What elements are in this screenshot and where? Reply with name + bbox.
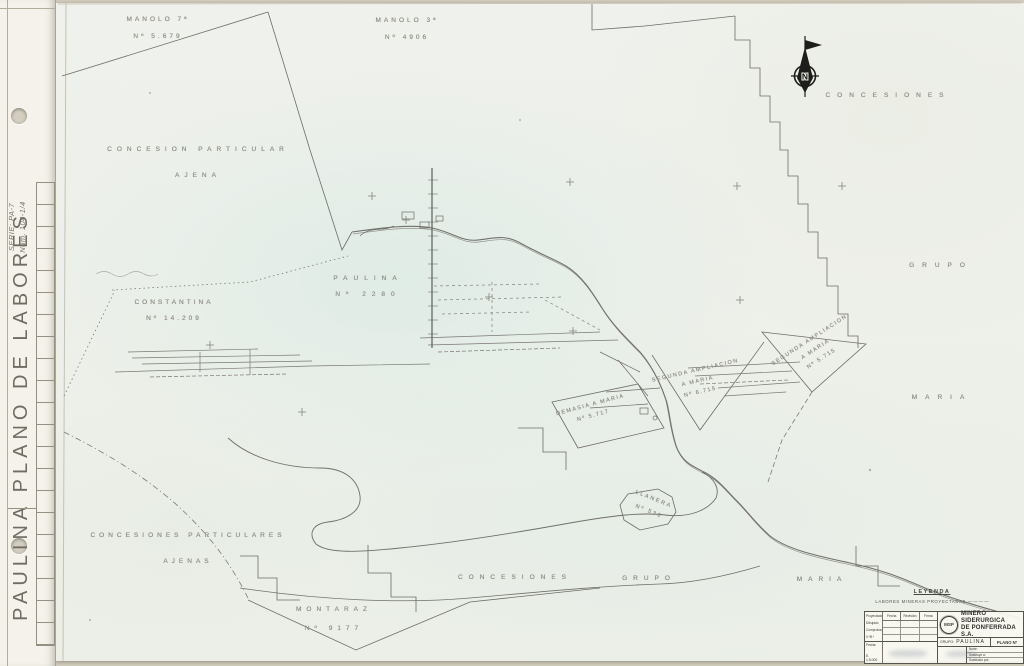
company-name-line2: DE PONFERRADA S.A. xyxy=(961,625,1021,639)
legend-title: LEYENDA xyxy=(852,589,1012,595)
grupo-label: GRUPO: xyxy=(940,640,954,644)
scanned-mining-plan: { "binder": { "vertical_title": "PAULINA… xyxy=(0,0,1024,666)
company-name-line1: MINERO SIDERURGICA xyxy=(961,611,1021,625)
incline-line xyxy=(428,168,438,348)
legend-item: LABORES MINERAS PROYECTADAS — — — — xyxy=(852,599,1012,604)
label-manolo-3: MANOLO 3ªNº 4906 xyxy=(376,12,439,46)
label-concesion-particular-ajena: CONCESION PARTICULARAJENA xyxy=(107,137,289,189)
title-block-revision-table: Proyectado Dibujado Comprobado V.ºB.º Fe… xyxy=(865,612,938,663)
handwritten-serie: SERIE: PA-7 xyxy=(6,171,17,283)
grupo-value: PAULINA xyxy=(956,639,985,645)
escala-value: E. 1:5.000 xyxy=(866,654,881,662)
fecha-label: Fecha: xyxy=(866,643,881,647)
revision-header-firma: Firma xyxy=(920,612,937,620)
binder-index-table xyxy=(36,182,55,646)
binder-strip: PAULINA PLANO DE LABORES SERIE: PA-7 Núm… xyxy=(0,0,56,666)
title-block-main: MSP MINERO SIDERURGICA DE PONFERRADA S.A… xyxy=(938,612,1023,663)
projected-works-lines xyxy=(434,282,600,332)
title-block: Proyectado Dibujado Comprobado V.ºB.º Fe… xyxy=(864,611,1024,664)
msp-logo-icon: MSP xyxy=(940,616,958,634)
plano-number-label: PLANO Nº xyxy=(991,638,1023,646)
binder-handwritten-note: SERIE: PA-7 Núm. 104-1/4 xyxy=(6,171,32,283)
handwritten-note-area xyxy=(883,642,937,663)
meta-row-sustituido: Sustituido por: xyxy=(967,658,1023,663)
label-maria-bottom: MARIA xyxy=(797,575,848,585)
label-maria-right: MARIA xyxy=(912,393,973,403)
legend: LEYENDA LABORES MINERAS PROYECTADAS — — … xyxy=(852,589,1012,604)
revision-header-revision: Revisión xyxy=(901,612,919,620)
label-grupo-right: GRUPO xyxy=(909,261,973,271)
revision-header-fecha: Fecha xyxy=(883,612,901,620)
north-letter: N xyxy=(802,72,808,82)
label-paulina: PAULINANº 2280 xyxy=(333,271,402,303)
legend-item-label: LABORES MINERAS PROYECTADAS xyxy=(875,599,966,604)
label-manolo-7: MANOLO 7ªNº 5.679 xyxy=(127,11,190,45)
binder-title-divider xyxy=(8,508,37,509)
handwritten-num: Núm. 104-1/4 xyxy=(17,171,28,283)
legend-dash-symbol: — — — — xyxy=(968,599,989,604)
label-concesiones-bottom: CONCESIONES xyxy=(458,573,572,583)
binder-top-line xyxy=(0,8,55,9)
revision-row-labels: Proyectado Dibujado Comprobado V.ºB.º xyxy=(865,612,883,641)
label-grupo-bottom: GRUPO xyxy=(622,574,676,584)
title-block-blank-cell xyxy=(938,647,967,663)
punch-hole-top xyxy=(11,108,27,124)
label-montaraz: MONTARAZNº 9177 xyxy=(296,600,372,638)
label-constantina: CONSTANTINANº 14.209 xyxy=(134,295,213,327)
survey-crosses xyxy=(206,178,846,416)
label-concesiones-particulares-ajenas: CONCESIONES PARTICULARESAJENAS xyxy=(90,523,285,575)
label-concesiones-top-right: CONCESIONES xyxy=(825,91,950,101)
north-arrow-icon: N xyxy=(791,36,822,97)
